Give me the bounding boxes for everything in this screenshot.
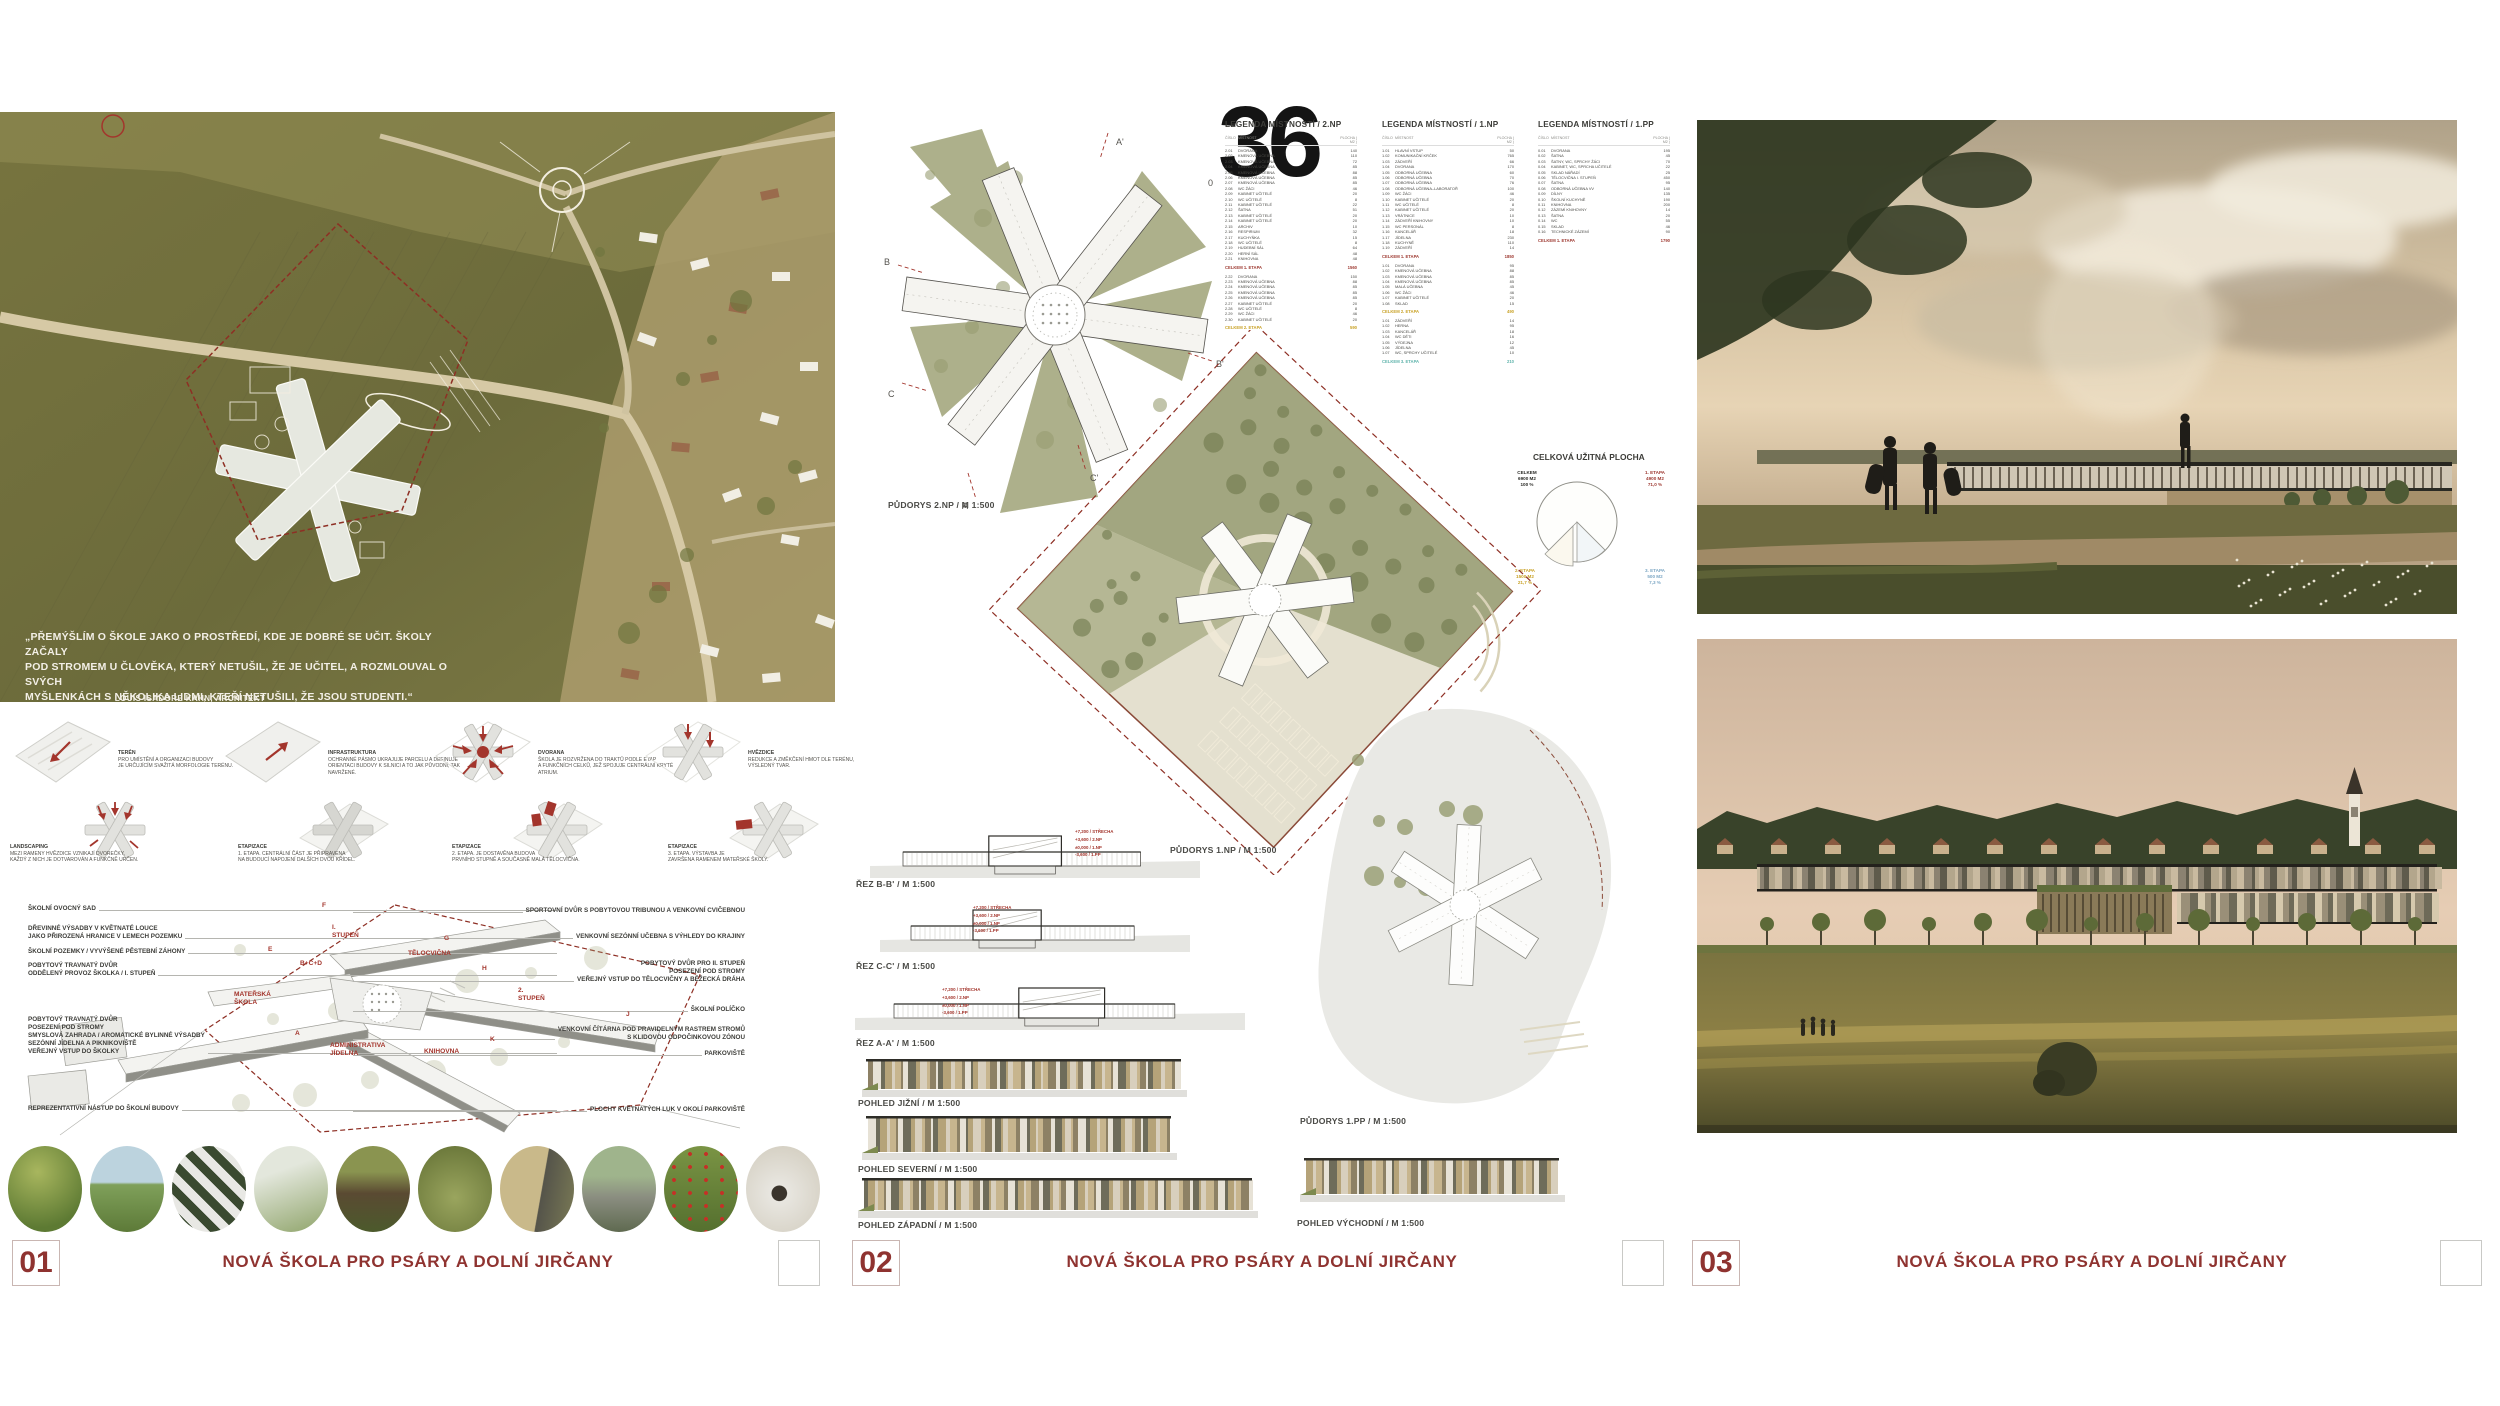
room-legend: LEGENDA MÍSTNOSTÍ / 2.NPČÍSLOMÍSTNOSTPLO… — [1225, 120, 1357, 334]
legend-header: ČÍSLOMÍSTNOSTPLOCHA ( M2 ) — [1538, 136, 1670, 146]
board-title-02: NOVÁ ŠKOLA PRO PSÁRY A DOLNÍ JIRČANY — [1067, 1252, 1458, 1272]
building-label: TĚLOCVIČNA — [408, 950, 451, 958]
leader-line — [353, 981, 574, 982]
reference-photo: F — [418, 1146, 492, 1232]
photo-letter: G — [508, 1147, 513, 1153]
building-label: I. STUPEŇ — [332, 924, 359, 939]
competition-board: { "footer": {"title": "NOVÁ ŠKOLA PRO PS… — [0, 0, 2500, 1406]
levels-aa: +7,200 / STŘECHA +3,600 / 2.NP ±0,000 / … — [942, 986, 980, 1017]
concept-diagram: ETAPIZACE1. ETAPA. CENTRÁLNÍ ČÁST JE PŘI… — [238, 800, 438, 882]
board-title-03: NOVÁ ŠKOLA PRO PSÁRY A DOLNÍ JIRČANY — [1897, 1252, 2288, 1272]
leader-line — [353, 1055, 702, 1056]
pie-etapa3-label: 3. ETAPA 500 M2 7,3 % — [1633, 568, 1677, 585]
legend-title: LEGENDA MÍSTNOSTÍ / 1.NP — [1382, 120, 1514, 129]
reference-photo: G — [500, 1146, 574, 1232]
section-aa-drawing — [855, 982, 1245, 1030]
axon-right-label: PLOCHY KVĚTNATÝCH LUK V OKOLÍ PARKOVIŠTĚ — [350, 1106, 745, 1114]
stamp-box-02 — [1622, 1240, 1664, 1286]
legend-row: 1.08SKLAD15 — [1382, 301, 1514, 306]
building-label: B+C+D — [300, 960, 322, 968]
svg-text:A': A' — [1116, 137, 1124, 147]
panel-02: A'ABB'CC' PŮDORYS 2.NP / M 1:500 36 0 LE… — [845, 0, 1680, 1406]
leader-line — [188, 953, 557, 954]
section-cc-label: ŘEZ C-C' / M 1:500 — [856, 961, 935, 971]
building-label: ADMINISTRATIVA JÍDELNA — [330, 1042, 385, 1057]
reference-photo: D — [254, 1146, 328, 1232]
building-label: E — [268, 946, 272, 954]
concept-diagram: INFRASTRUKTURAOCHRANNÉ PÁSMO UKRAJUJE PA… — [218, 716, 418, 798]
section-cc-drawing — [880, 898, 1190, 952]
photo-letter: F — [426, 1147, 430, 1153]
leader-line — [353, 938, 573, 939]
leader-line — [353, 1111, 587, 1112]
concept-diagram: TERÉNPRO UMÍSTĚNÍ A ORGANIZACI BUDOVY JE… — [8, 716, 208, 798]
reference-photo: E — [336, 1146, 410, 1232]
atrium-icon — [428, 716, 538, 793]
axon-right-label: VENKOVNÍ SEZÓNNÍ UČEBNA S VÝHLEDY DO KRA… — [350, 933, 745, 941]
legend-row: 1.19ZÁDVEŘÍ14 — [1382, 245, 1514, 250]
svg-text:C: C — [888, 389, 895, 399]
photo-letter: B — [98, 1147, 102, 1153]
room-legend: LEGENDA MÍSTNOSTÍ / 1.PPČÍSLOMÍSTNOSTPLO… — [1538, 120, 1670, 247]
stamp-box-01 — [778, 1240, 820, 1286]
leader-line — [353, 1039, 555, 1040]
reference-photo: H — [582, 1146, 656, 1232]
building-label: H — [482, 965, 487, 973]
quote-author: LOUIS ISADORE KAHN, ARCHITEKT — [40, 694, 340, 703]
concept-diagram: LANDSCAPINGMEZI RAMENY HVĚZDICE VZNIKAJÍ… — [10, 800, 210, 882]
legend-total: CELKEM 1. ETAPA1790 — [1538, 238, 1670, 243]
legend-header: ČÍSLOMÍSTNOSTPLOCHA ( M2 ) — [1225, 136, 1357, 146]
levels-cc: +7,200 / STŘECHA +3,600 / 2.NP ±0,000 / … — [973, 904, 1011, 935]
stamp-box-03 — [2440, 1240, 2482, 1286]
photo-letter: E — [344, 1147, 348, 1153]
infrastructure-icon — [218, 716, 328, 793]
svg-text:B: B — [884, 257, 890, 267]
pie-etapa1-label: 1. ETAPA 4900 M2 71,0 % — [1633, 470, 1677, 487]
elevation-south-drawing — [862, 1053, 1187, 1097]
photo-letter: D — [262, 1147, 266, 1153]
diagram-caption: LANDSCAPINGMEZI RAMENY HVĚZDICE VZNIKAJÍ… — [10, 844, 180, 864]
section-bb-label: ŘEZ B-B' / M 1:500 — [856, 879, 935, 889]
scale-zero: 0 — [1208, 178, 1213, 188]
elevation-north-drawing — [862, 1110, 1177, 1160]
photo-letter: A — [16, 1147, 20, 1153]
panel-number-03: 03 — [1692, 1240, 1740, 1286]
building-label: F — [322, 902, 326, 910]
elevation-west-drawing — [858, 1172, 1258, 1218]
axon-right-label: PARKOVIŠTĚ — [350, 1050, 745, 1058]
concept-diagram: ETAPIZACE3. ETAPA. VÝSTAVBA JE ZAVRŠENA … — [668, 800, 868, 882]
building-label: 2. STUPEŇ — [518, 987, 545, 1002]
render-field-view — [1697, 639, 2457, 1133]
star-icon — [638, 716, 748, 793]
diagram-caption: ETAPIZACE3. ETAPA. VÝSTAVBA JE ZAVRŠENA … — [668, 844, 838, 864]
concept-diagram: HVĚZDICEREDUKCE A ZMĚKČENÍ HMOT DLE TERÉ… — [638, 716, 838, 798]
building-label: G — [444, 935, 449, 943]
concept-diagram: ETAPIZACE2. ETAPA. JE DOSTAVĚNA BUDOVA P… — [452, 800, 652, 882]
legend-row: 2.30KABINET UČITELÉ20 — [1225, 317, 1357, 322]
elevation-south-label: POHLED JIŽNÍ / M 1:500 — [858, 1098, 960, 1108]
axon-right-label: POBYTOVÝ DVŮR PRO II. STUPEŇ POSEZENÍ PO… — [350, 960, 745, 984]
legend-total: CELKEM 1. ETAPA1850 — [1382, 254, 1514, 259]
legend-total: CELKEM 1. ETAPA1560 — [1225, 265, 1357, 270]
reference-photo: K — [746, 1146, 820, 1232]
panel-number-02: 02 — [852, 1240, 900, 1286]
panel-03 — [1690, 0, 2500, 1406]
diagram-caption: ETAPIZACE1. ETAPA. CENTRÁLNÍ ČÁST JE PŘI… — [238, 844, 408, 864]
diagram-caption: ETAPIZACE2. ETAPA. JE DOSTAVĚNA BUDOVA P… — [452, 844, 622, 864]
legend-title: LEGENDA MÍSTNOSTÍ / 2.NP — [1225, 120, 1357, 129]
section-bb-drawing — [870, 822, 1200, 878]
photo-letter: J — [672, 1147, 675, 1153]
axon-right-label: VENKOVNÍ ČÍTÁRNA POD PRAVIDELNÝM RASTREM… — [350, 1026, 745, 1042]
board-title-01: NOVÁ ŠKOLA PRO PSÁRY A DOLNÍ JIRČANY — [223, 1252, 614, 1272]
photo-letter: C — [180, 1147, 184, 1153]
leader-line — [353, 912, 523, 913]
section-aa-label: ŘEZ A-A' / M 1:500 — [856, 1038, 935, 1048]
panel-01: „PŘEMÝŠLÍM O ŠKOLE JAKO O PROSTŘEDÍ, KDE… — [0, 0, 835, 1406]
elevation-west-label: POHLED ZÁPADNÍ / M 1:500 — [858, 1220, 977, 1230]
concept-diagram: DVORANAŠKOLA JE ROZVRŽENA DO TRAKTŮ PODL… — [428, 716, 628, 798]
legend-title: LEGENDA MÍSTNOSTÍ / 1.PP — [1538, 120, 1670, 129]
building-label: J — [626, 1011, 630, 1019]
levels-bb: +7,200 / STŘECHA +3,600 / 2.NP ±0,000 / … — [1075, 828, 1113, 859]
legend-header: ČÍSLOMÍSTNOSTPLOCHA ( M2 ) — [1382, 136, 1514, 146]
photo-letter: K — [754, 1147, 758, 1153]
building-label: MATEŘSKÁ ŠKOLA — [234, 991, 271, 1006]
plan-1pp-label: PŮDORYS 1.PP / M 1:500 — [1300, 1116, 1406, 1126]
reference-photo: J — [664, 1146, 738, 1232]
area-chart-title: CELKOVÁ UŽITNÁ PLOCHA — [1533, 452, 1645, 462]
axon-left-label: ŠKOLNÍ POZEMKY / VYVÝŠENÉ PĚSTEBNÍ ZÁHON… — [28, 948, 560, 956]
leader-line — [353, 1011, 688, 1012]
building-label: A — [295, 1030, 300, 1038]
aerial-site-photo — [0, 112, 835, 702]
photo-letter: H — [590, 1147, 594, 1153]
terrain-icon — [8, 716, 118, 793]
building-label: K — [490, 1036, 495, 1044]
reference-photo: B — [90, 1146, 164, 1232]
legend-row: 0.16TECHNICKÉ ZÁZEMÍ90 — [1538, 229, 1670, 234]
axon-right-label: ŠKOLNÍ POLÍČKO — [350, 1006, 745, 1014]
floor-plan-1pp — [1280, 700, 1640, 1115]
reference-photo: C — [172, 1146, 246, 1232]
legend-total: CELKEM 2. ETAPA490 — [1382, 309, 1514, 314]
elevation-east-drawing — [1300, 1152, 1565, 1202]
axon-right-label: SPORTOVNÍ DVŮR S POBYTOVOU TRIBUNOU A VE… — [350, 907, 745, 915]
plan-2np-label: PŮDORYS 2.NP / M 1:500 — [888, 500, 995, 510]
building-label: KNIHOVNA — [424, 1048, 459, 1056]
panel-number-01: 01 — [12, 1240, 60, 1286]
elevation-east-label: POHLED VÝCHODNÍ / M 1:500 — [1297, 1218, 1424, 1228]
render-approach-view — [1697, 120, 2457, 614]
reference-photo: A — [8, 1146, 82, 1232]
legend-row: 2.21KNIHOVNA48 — [1225, 256, 1357, 261]
